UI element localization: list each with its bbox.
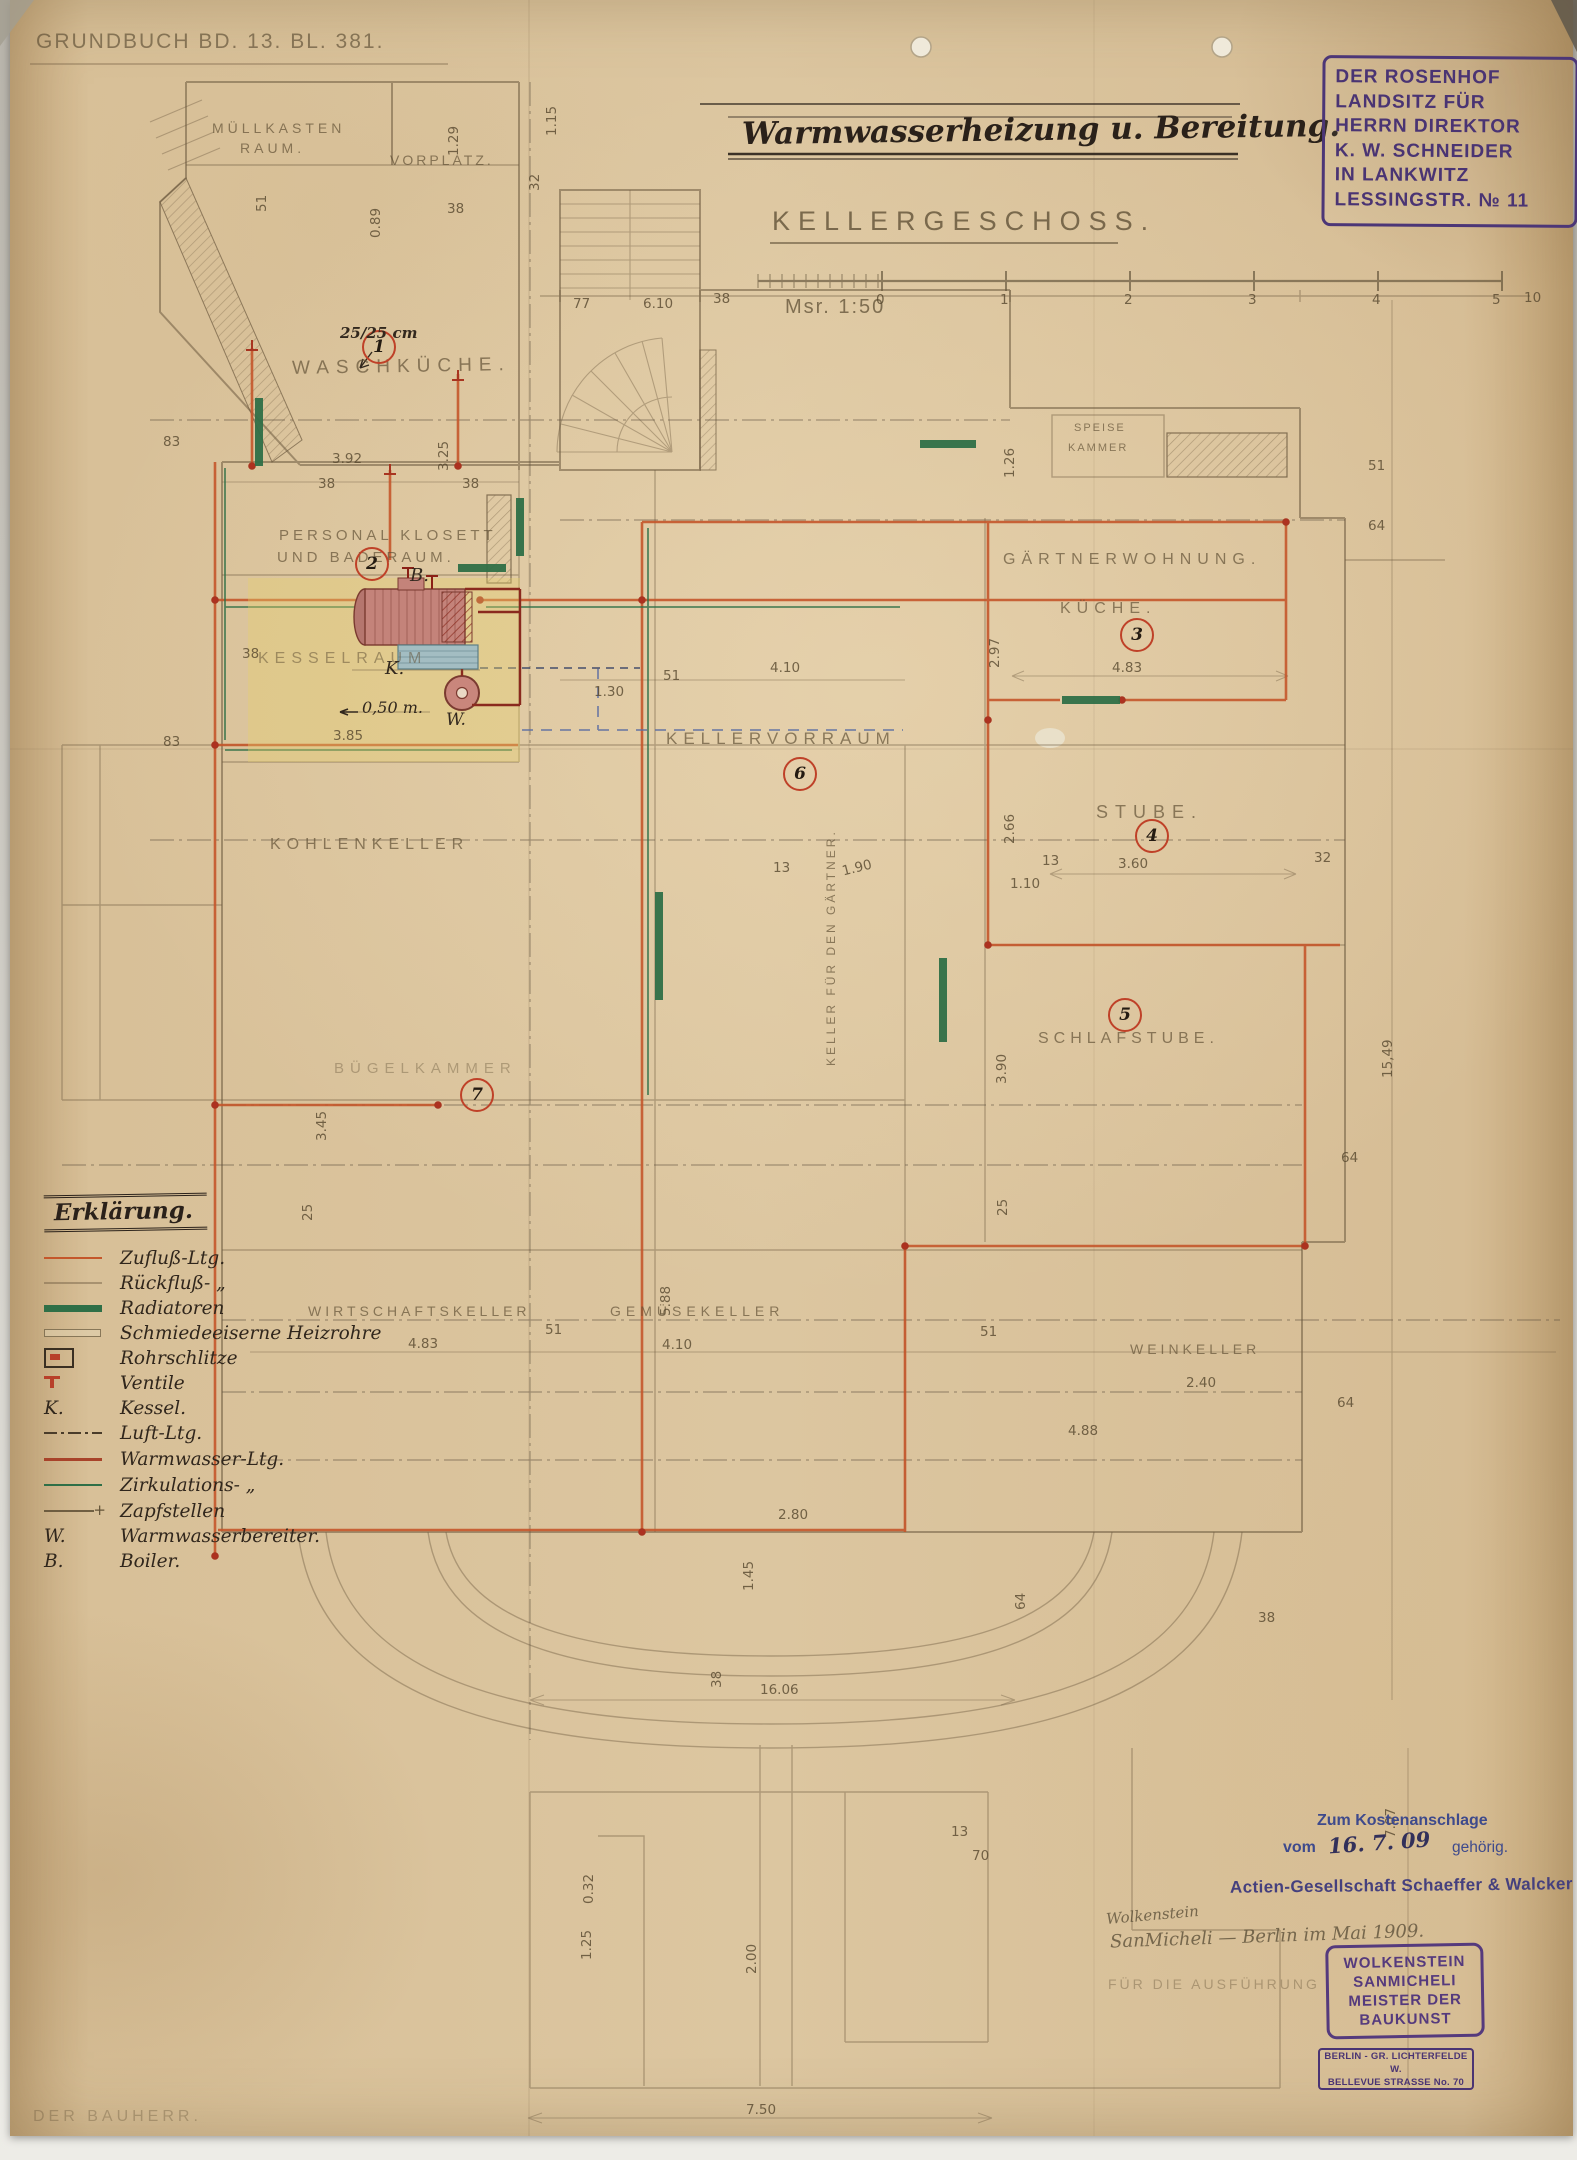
room-number-circle-3: 3 (1120, 618, 1154, 652)
legend-label: Ventile (120, 1373, 185, 1394)
room-number-circle-6: 6 (783, 757, 817, 791)
dimension-label: 25 (995, 1199, 1011, 1216)
owner-stamp-line: HERRN DIREKTOR (1335, 114, 1575, 140)
legend-label: Radiatoren (120, 1298, 224, 1319)
room-label-gemuesekeller: Gemüsekeller (610, 1303, 784, 1319)
room-number: 2 (366, 554, 378, 574)
room-number: 3 (1131, 625, 1143, 645)
dimension-label: 64 (1368, 518, 1385, 534)
room-number-circle-5: 5 (1108, 998, 1142, 1032)
dimension-label: 10 (1524, 290, 1541, 306)
legend-symbol-return (44, 1282, 106, 1284)
pipe-size-note: 25/25 cm (340, 324, 417, 342)
kostenanschlag-stamp-vom: vom (1283, 1839, 1316, 1857)
builder-stamp: WOLKENSTEIN SANMICHELI MEISTER DER BAUKU… (1325, 1943, 1485, 2040)
dimension-label: 6.10 (643, 296, 673, 312)
dimension-label: 2.40 (1186, 1375, 1216, 1391)
room-label-speisekammer-1: Speise (1074, 422, 1126, 434)
dimension-label: 1.45 (741, 1561, 757, 1591)
room-label-schlafstube: Schlafstube. (1038, 1030, 1219, 1048)
legend-symbol-zirkulation (44, 1484, 106, 1486)
dimension-label: 51 (1368, 458, 1385, 474)
dimension-label: 51 (663, 668, 680, 684)
dimension-label: 0.32 (581, 1874, 597, 1904)
scale-tick-label: 3 (1248, 292, 1257, 308)
dimension-label: 15,49 (1380, 1039, 1396, 1078)
room-number-circle-2: 2 (355, 547, 389, 581)
scale-tick-label: 5 (1492, 292, 1501, 308)
legend-label: Warmwasser-Ltg. (120, 1449, 284, 1470)
kostenanschlag-stamp-gehoerig: gehörig. (1452, 1839, 1508, 1857)
scale-tick-label: 2 (1124, 292, 1133, 308)
legend-heading: Erklärung. (44, 1193, 208, 1233)
legend-label: Zufluß-Ltg. (120, 1248, 225, 1269)
dimension-label: 2.66 (1002, 814, 1018, 844)
bauherr-label: Der Bauherr. (33, 2108, 202, 2126)
room-label-kueche: Küche. (1060, 600, 1156, 618)
room-label-speisekammer-2: Kammer (1068, 442, 1128, 454)
boiler-label: B. (410, 565, 429, 586)
dimension-label: 3.25 (436, 441, 452, 471)
room-label-wirtschaftskeller: Wirtschaftskeller (308, 1303, 531, 1319)
depth-note: 0,50 m. (362, 698, 423, 717)
room-number-circle-4: 4 (1135, 819, 1169, 853)
builder-stamp-line: BAUKUNST (1329, 2009, 1481, 2031)
dimension-label: 4.10 (770, 660, 800, 676)
dimension-label: 7.50 (746, 2102, 776, 2118)
dimension-label: 0.89 (368, 208, 384, 238)
address-stamp-line: BERLIN - GR. LICHTERFELDE W. (1320, 2050, 1472, 2076)
room-label-gaertnerkeller: Keller für den Gärtner. (824, 829, 838, 1066)
dimension-label: 1.15 (544, 106, 560, 136)
dimension-label: 25 (300, 1204, 316, 1221)
room-number: 4 (1146, 826, 1158, 846)
scale-tick-label: 1 (1000, 292, 1009, 308)
owner-stamp-line: LESSINGSTR. № 11 (1335, 188, 1575, 214)
scale-bar (758, 271, 1502, 291)
dimension-label: 3.85 (333, 728, 363, 744)
dimension-label: 13 (951, 1824, 968, 1840)
air-lines (480, 668, 903, 730)
dimension-label: 1.26 (1002, 448, 1018, 478)
legend-prefix-w: W. (44, 1526, 106, 1547)
legend-label: Zirkulations- „ (120, 1475, 255, 1496)
legend-symbol-rohrschlitz (44, 1348, 106, 1368)
room-number: 6 (794, 764, 806, 784)
dimension-label: 3.92 (332, 451, 362, 467)
legend-label: Warmwasserbereiter. (120, 1526, 320, 1547)
dimension-label: 38 (447, 201, 464, 217)
room-label-kellervorraum: Kellervorraum (666, 729, 896, 749)
legend-symbol-radiator (44, 1305, 106, 1312)
dimension-label: 83 (163, 734, 180, 750)
dimension-label: 1.30 (594, 684, 624, 700)
firm-stamp: Actien-Gesellschaft Schaeffer & Walcker (1230, 1874, 1573, 1898)
legend-symbol-warmwasser (44, 1458, 106, 1461)
room-label-buegelkammer: Bügelkammer (334, 1060, 517, 1077)
legend-label: Luft-Ltg. (120, 1423, 202, 1444)
dimension-label: 5.88 (658, 1286, 674, 1316)
address-stamp: BERLIN - GR. LICHTERFELDE W. BELLEVUE ST… (1318, 2048, 1474, 2090)
dimension-label: 77 (573, 296, 590, 312)
kessel-label: K. (385, 658, 404, 679)
axis-lines (62, 82, 1560, 1740)
dimension-label: 51 (254, 195, 270, 212)
dimension-label: 16.06 (760, 1682, 799, 1698)
legend-label: Rückfluß- „ (120, 1273, 226, 1294)
room-label-vorplatz: Vorplatz. (390, 152, 494, 168)
legend-label: Zapfstellen (120, 1501, 225, 1522)
legend-prefix-b: B. (44, 1551, 106, 1572)
room-number: 5 (1119, 1005, 1131, 1025)
owner-stamp-line: DER ROSENHOF (1335, 65, 1575, 91)
room-label-muellkasten-2: Raum. (240, 140, 305, 156)
legend-label: Kessel. (120, 1398, 186, 1419)
dimension-label: 2.80 (778, 1507, 808, 1523)
dimension-label: 38 (1258, 1610, 1275, 1626)
dimension-label: 13 (1042, 853, 1059, 869)
owner-stamp-line: IN LANKWITZ (1335, 163, 1575, 189)
legend: Erklärung. Zufluß-Ltg. Rückfluß- „ Radia… (44, 1194, 364, 1231)
dimension-label: 32 (527, 174, 543, 191)
dimension-label: 51 (545, 1322, 562, 1338)
dimension-label: 4.83 (1112, 660, 1142, 676)
owner-stamp-line: K. W. SCHNEIDER (1335, 139, 1575, 165)
dimension-label: 38 (713, 291, 730, 307)
dimension-label: 4.88 (1068, 1423, 1098, 1439)
legend-symbol-ventil (44, 1376, 106, 1391)
scale-tick-label: 4 (1372, 292, 1381, 308)
legend-symbol-luft (44, 1432, 106, 1434)
dimension-label: 38 (242, 646, 259, 662)
legend-symbol-supply (44, 1257, 106, 1259)
dimension-label: 51 (980, 1324, 997, 1340)
legend-label: Boiler. (120, 1551, 180, 1572)
dimension-label: 13 (773, 860, 790, 876)
dimension-label: 38 (318, 476, 335, 492)
punch-hole (1212, 37, 1232, 57)
dimension-label: 83 (163, 434, 180, 450)
room-label-muellkasten: Müllkasten (212, 120, 345, 136)
dimension-label: 3.60 (1118, 856, 1148, 872)
punch-hole (911, 37, 931, 57)
legend-label: Schmiedeeiserne Heizrohre (120, 1323, 381, 1344)
legend-symbol-zapfstelle (44, 1510, 106, 1512)
room-label-kohlenkeller: Kohlenkeller (270, 836, 469, 854)
warmwasserbereiter-label: W. (446, 710, 466, 730)
room-number: 7 (471, 1085, 483, 1105)
scale-label: Msr. 1:50 (785, 296, 885, 319)
dimension-label: 64 (1341, 1150, 1358, 1166)
room-number-circle-7: 7 (460, 1078, 494, 1112)
dimension-label: 4.83 (408, 1336, 438, 1352)
dimension-label: 3.90 (994, 1054, 1010, 1084)
room-label-waschkueche: Waschküche. (292, 354, 511, 380)
owner-stamp-line: LANDSITZ FÜR (1335, 90, 1575, 116)
dimension-label: 64 (1337, 1395, 1354, 1411)
legend-symbol-heizrohre (44, 1329, 106, 1337)
legend-prefix-k: K. (44, 1398, 106, 1419)
dimension-label: 64 (1013, 1593, 1029, 1610)
floor-title: Kellergeschoss. (772, 206, 1156, 237)
dimension-label: 32 (1314, 850, 1331, 866)
address-stamp-line: BELLEVUE STRASSE No. 70 (1320, 2076, 1472, 2089)
dimension-label: 1.25 (579, 1930, 595, 1960)
dimension-label: 1.29 (446, 126, 462, 156)
ausfuehrung-note: Für die Ausführung (1108, 1976, 1320, 1992)
dimension-label: 70 (972, 1848, 989, 1864)
room-label-gaertnerwohnung: Gärtnerwohnung. (1003, 551, 1261, 569)
dimension-label: 2.00 (744, 1944, 760, 1974)
dimension-label: 2.97 (987, 638, 1003, 668)
dimension-label: 3.45 (314, 1111, 330, 1141)
dimension-label: 4.10 (662, 1337, 692, 1353)
grundbuch-note: Grundbuch Bd. 13. Bl. 381. (36, 30, 384, 54)
room-label-bad-1: Personal Klosett (279, 527, 497, 544)
dimension-label: 38 (462, 476, 479, 492)
dimension-label: 38 (709, 1671, 725, 1688)
dimension-label: 1.10 (1010, 876, 1040, 892)
drawing-sheet: Grundbuch Bd. 13. Bl. 381. Warmwasserhei… (0, 0, 1577, 2160)
scale-tick-label: 0 (876, 292, 885, 308)
room-label-weinkeller: Weinkeller (1130, 1341, 1260, 1357)
owner-stamp: DER ROSENHOF LANDSITZ FÜR HERRN DIREKTOR… (1321, 55, 1577, 228)
legend-label: Rohrschlitze (120, 1348, 238, 1369)
